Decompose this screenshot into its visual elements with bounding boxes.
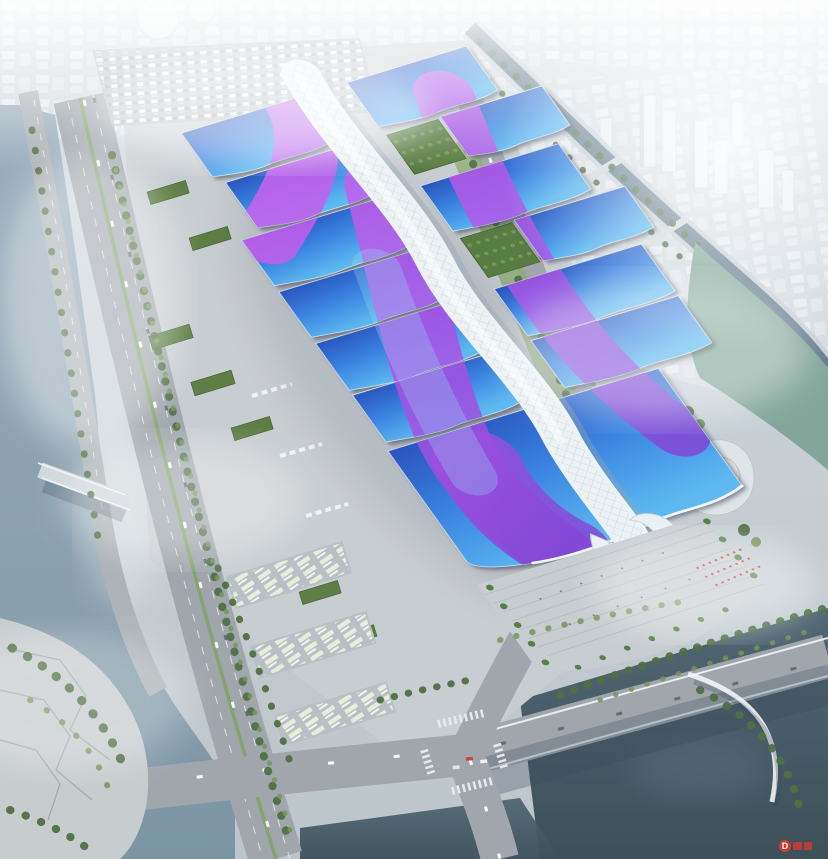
- watermark-glyph-block: [793, 842, 802, 850]
- haze-overlay: [0, 0, 828, 859]
- watermark-glyph-block: [804, 842, 812, 850]
- watermark-symbol: D: [782, 841, 789, 851]
- aerial-render-exhibition-center: Aerial rendering of a riverside exhibiti…: [0, 0, 828, 859]
